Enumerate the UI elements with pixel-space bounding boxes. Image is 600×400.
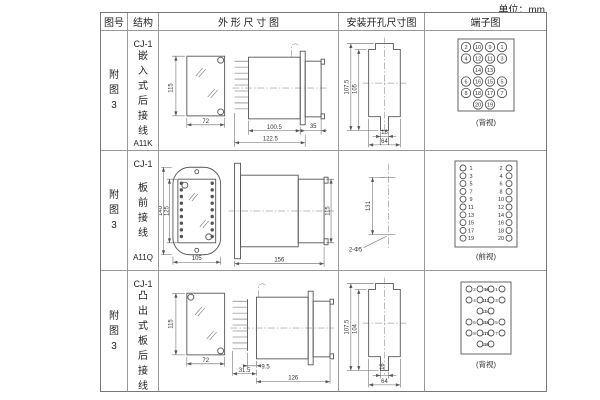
terminal-screw [506,180,512,186]
terminal-screw [460,219,466,225]
terminal-number: 1 [469,166,472,172]
terminal-cell-a11h: (背视) 2109141211314136161558181772019 [425,271,546,391]
structure-label: 凸出式板后接线 [137,289,150,391]
terminal-diagram-a11h: (背视) 2109141211314136161558181772019 [425,271,546,391]
terminal-screw [460,204,466,210]
terminal-screw [477,286,483,292]
terminal-number: 16 [475,79,481,85]
terminal-screw [499,330,505,336]
terminal-number: 1 [495,287,498,292]
dim-plate-inner-height: 125 [164,205,170,216]
fig-no-text: 附图3 [108,188,121,233]
terminal-number: 17 [468,228,474,234]
terminal-number: 20 [498,236,504,242]
terminal-number: 20 [475,102,481,108]
view-label: (背视) [476,117,496,127]
dim-comb-length: 31.5 [239,368,251,374]
terminal-number: 3 [469,173,472,179]
terminal-number: 6 [464,79,467,85]
dim-cutout-inner-height: 104 [352,323,358,334]
terminal-screw [460,211,466,217]
dim-hole-distance: 131 [366,201,372,211]
terminal-number: 6 [473,320,476,325]
terminal-number: 9 [469,197,472,203]
structure-cell-a11k: CJ-1 嵌入式后接线 A11K [128,31,159,151]
header-outline: 外 形 尺 寸 图 [159,13,339,31]
terminal-screw [506,235,512,241]
side-view: 9.5 31.5 126 [231,284,334,384]
terminal-screw [506,165,512,171]
dim-total-length: 122.5 [263,136,279,142]
terminal-number: 14 [475,68,481,74]
front-view: 115 72 [168,293,224,367]
dim-front-width: 72 [202,358,209,364]
terminal-number: 16 [498,220,504,226]
view-label: (前视) [476,251,496,261]
terminal-screw [460,227,466,233]
terminal-screw [460,235,466,241]
terminal-number: 10 [475,45,481,51]
terminal-screw [460,188,466,194]
terminal-screw [506,219,512,225]
terminal-number: 2 [499,166,502,172]
hole-size-label: 2-Φ5 [349,247,363,253]
front-view: 140 125 105 [159,167,221,264]
terminal-number: 4 [473,298,476,303]
view-label: (背视) [476,359,496,369]
terminal-screw [506,227,512,233]
terminal-number: 17 [482,331,488,336]
dim-cutout-inner-height: 105 [352,83,358,94]
dim-front-height: 115 [168,82,174,92]
terminal-screw [499,286,505,292]
install-drawing-a11h: 107.5 104 16 64 [339,271,424,391]
terminal-number: 19 [468,236,474,242]
header-structure: 结构 [128,13,159,31]
terminal-diagram-a11q: (前视) 1234567891011121314151617181920 [425,151,546,271]
terminal-number: 4 [464,56,467,62]
terminal-number: 11 [482,298,487,303]
install-cell-a11k: 107.5 105 16 [64] [339,31,425,151]
terminal-number: 18 [475,91,481,97]
dim-slot-width: 16 [380,363,386,370]
header-terminal: 端子图 [425,13,546,31]
terminal-screw [499,297,505,303]
terminal-screw [460,172,466,178]
terminal-number: 11 [487,56,493,62]
structure-cell-a11q: CJ-1 板前接线 A11Q [128,151,159,271]
terminal-number: 7 [495,331,498,336]
structure-label: 嵌入式后接线 [137,49,150,139]
outline-cell-a11h: 115 72 9.5 [159,271,339,391]
spec-table: 图号 结构 外 形 尺 寸 图 安装开孔尺寸图 端子图 附图3 CJ-1 嵌入式… [100,12,547,392]
dim-nose-length: 35 [310,123,317,129]
front-view: 115 72 [168,56,224,128]
terminal-number: 18 [498,228,504,234]
dim-front-height: 115 [168,319,174,329]
dim-total-length: 126 [288,376,299,382]
terminal-number: 8 [464,91,467,97]
fig-no-cell-a11k: 附图3 [101,31,128,151]
terminal-number: 9 [488,45,491,51]
outline-drawing-a11q: 140 125 105 156 [159,151,338,271]
structure-cell-a11h: CJ-1 凸出式板后接线 A11H [128,271,159,391]
terminal-screw [466,297,472,303]
terminal-screw [506,188,512,194]
model-label: A11K [134,139,153,148]
terminal-number: 11 [468,205,474,211]
terminal-number: 13 [487,68,493,74]
terminal-number: 14 [498,212,504,218]
header-install: 安装开孔尺寸图 [339,13,425,31]
outline-cell-a11k: 115 72 100.5 [159,31,339,151]
structure-label: 板前接线 [137,181,150,241]
fig-no-cell-a11h: 附图3 [101,271,128,391]
terminal-number: 19 [482,342,488,347]
fig-no-text: 附图3 [108,68,121,113]
terminal-number: 15 [468,220,474,226]
install-cell-a11h: 107.5 104 16 64 [339,271,425,391]
side-view: 100.5 122.5 35 [233,43,328,146]
terminal-number: 2 [464,45,467,51]
terminal-number: 8 [473,331,476,336]
terminal-number: 5 [500,79,503,85]
header-fig-no: 图号 [101,13,128,31]
dim-cutout-outer-height: 107.5 [344,78,350,94]
terminal-number: 1 [500,45,503,51]
terminal-number: 15 [487,79,493,85]
install-drawing-a11q: 131 2-Φ5 [339,151,424,271]
install-cell-a11q: 131 2-Φ5 [339,151,425,271]
terminal-screw [460,196,466,202]
dim-cutout-outer-height: 107.5 [344,319,350,335]
terminal-number: 3 [495,298,498,303]
fig-no-text: 附图3 [108,309,121,354]
terminal-number: 13 [482,309,488,314]
terminal-screw [506,211,512,217]
series-label: CJ-1 [133,159,152,169]
terminal-number: 3 [500,56,503,62]
terminal-screw [499,319,505,325]
terminal-screw [460,180,466,186]
dim-plate-width: 105 [192,256,203,262]
terminal-diagram-a11k: (背视) 2109141211314136161558181772019 [425,31,546,151]
install-drawing-a11k: 107.5 105 16 [64] [339,31,424,151]
terminal-cell-a11k: (背视) 2109141211314136161558181772019 [425,31,546,151]
dim-plate-outer-height: 140 [159,205,164,216]
terminal-cell-a11q: (前视) 1234567891011121314151617181920 [425,151,546,271]
terminal-number: 5 [469,181,472,187]
dim-side-height: 115 [326,205,332,215]
dim-body-length: 100.5 [267,124,283,130]
terminal-number: 7 [500,91,503,97]
fig-no-cell-a11q: 附图3 [101,151,128,271]
terminal-number: 6 [499,181,502,187]
terminal-number: 5 [495,320,498,325]
dim-slot-width: 16 [381,129,388,135]
model-label: A11Q [133,253,153,262]
series-label: CJ-1 [133,39,152,49]
dim-bottom-width: [64] [380,138,390,144]
terminal-screw [506,172,512,178]
terminal-screw [460,165,466,171]
terminal-number: 8 [499,189,502,195]
dim-gap-length: 9.5 [261,364,270,370]
terminal-screw [466,319,472,325]
terminal-number: 7 [469,189,472,195]
terminal-number: 10 [498,197,504,203]
series-label: CJ-1 [133,279,152,289]
terminal-number: 12 [475,56,481,62]
terminal-number: 12 [498,205,504,211]
outline-cell-a11q: 140 125 105 156 [159,151,339,271]
terminal-screw [506,204,512,210]
terminal-screw [466,330,472,336]
terminal-screw [466,286,472,292]
terminal-number: 19 [487,102,493,108]
dim-side-length: 156 [274,257,285,263]
side-view: 156 115 [229,163,334,266]
terminal-number: 17 [487,91,493,97]
dim-front-width: 72 [202,118,209,124]
dim-bottom-width: 64 [381,379,388,385]
outline-drawing-a11h: 115 72 9.5 [159,271,338,391]
terminal-screw [506,196,512,202]
terminal-number: 4 [499,173,502,179]
terminal-number: 15 [482,320,488,325]
terminal-number: 2 [473,287,476,292]
terminal-number: 13 [468,212,474,218]
outline-drawing-a11k: 115 72 100.5 [159,31,338,151]
